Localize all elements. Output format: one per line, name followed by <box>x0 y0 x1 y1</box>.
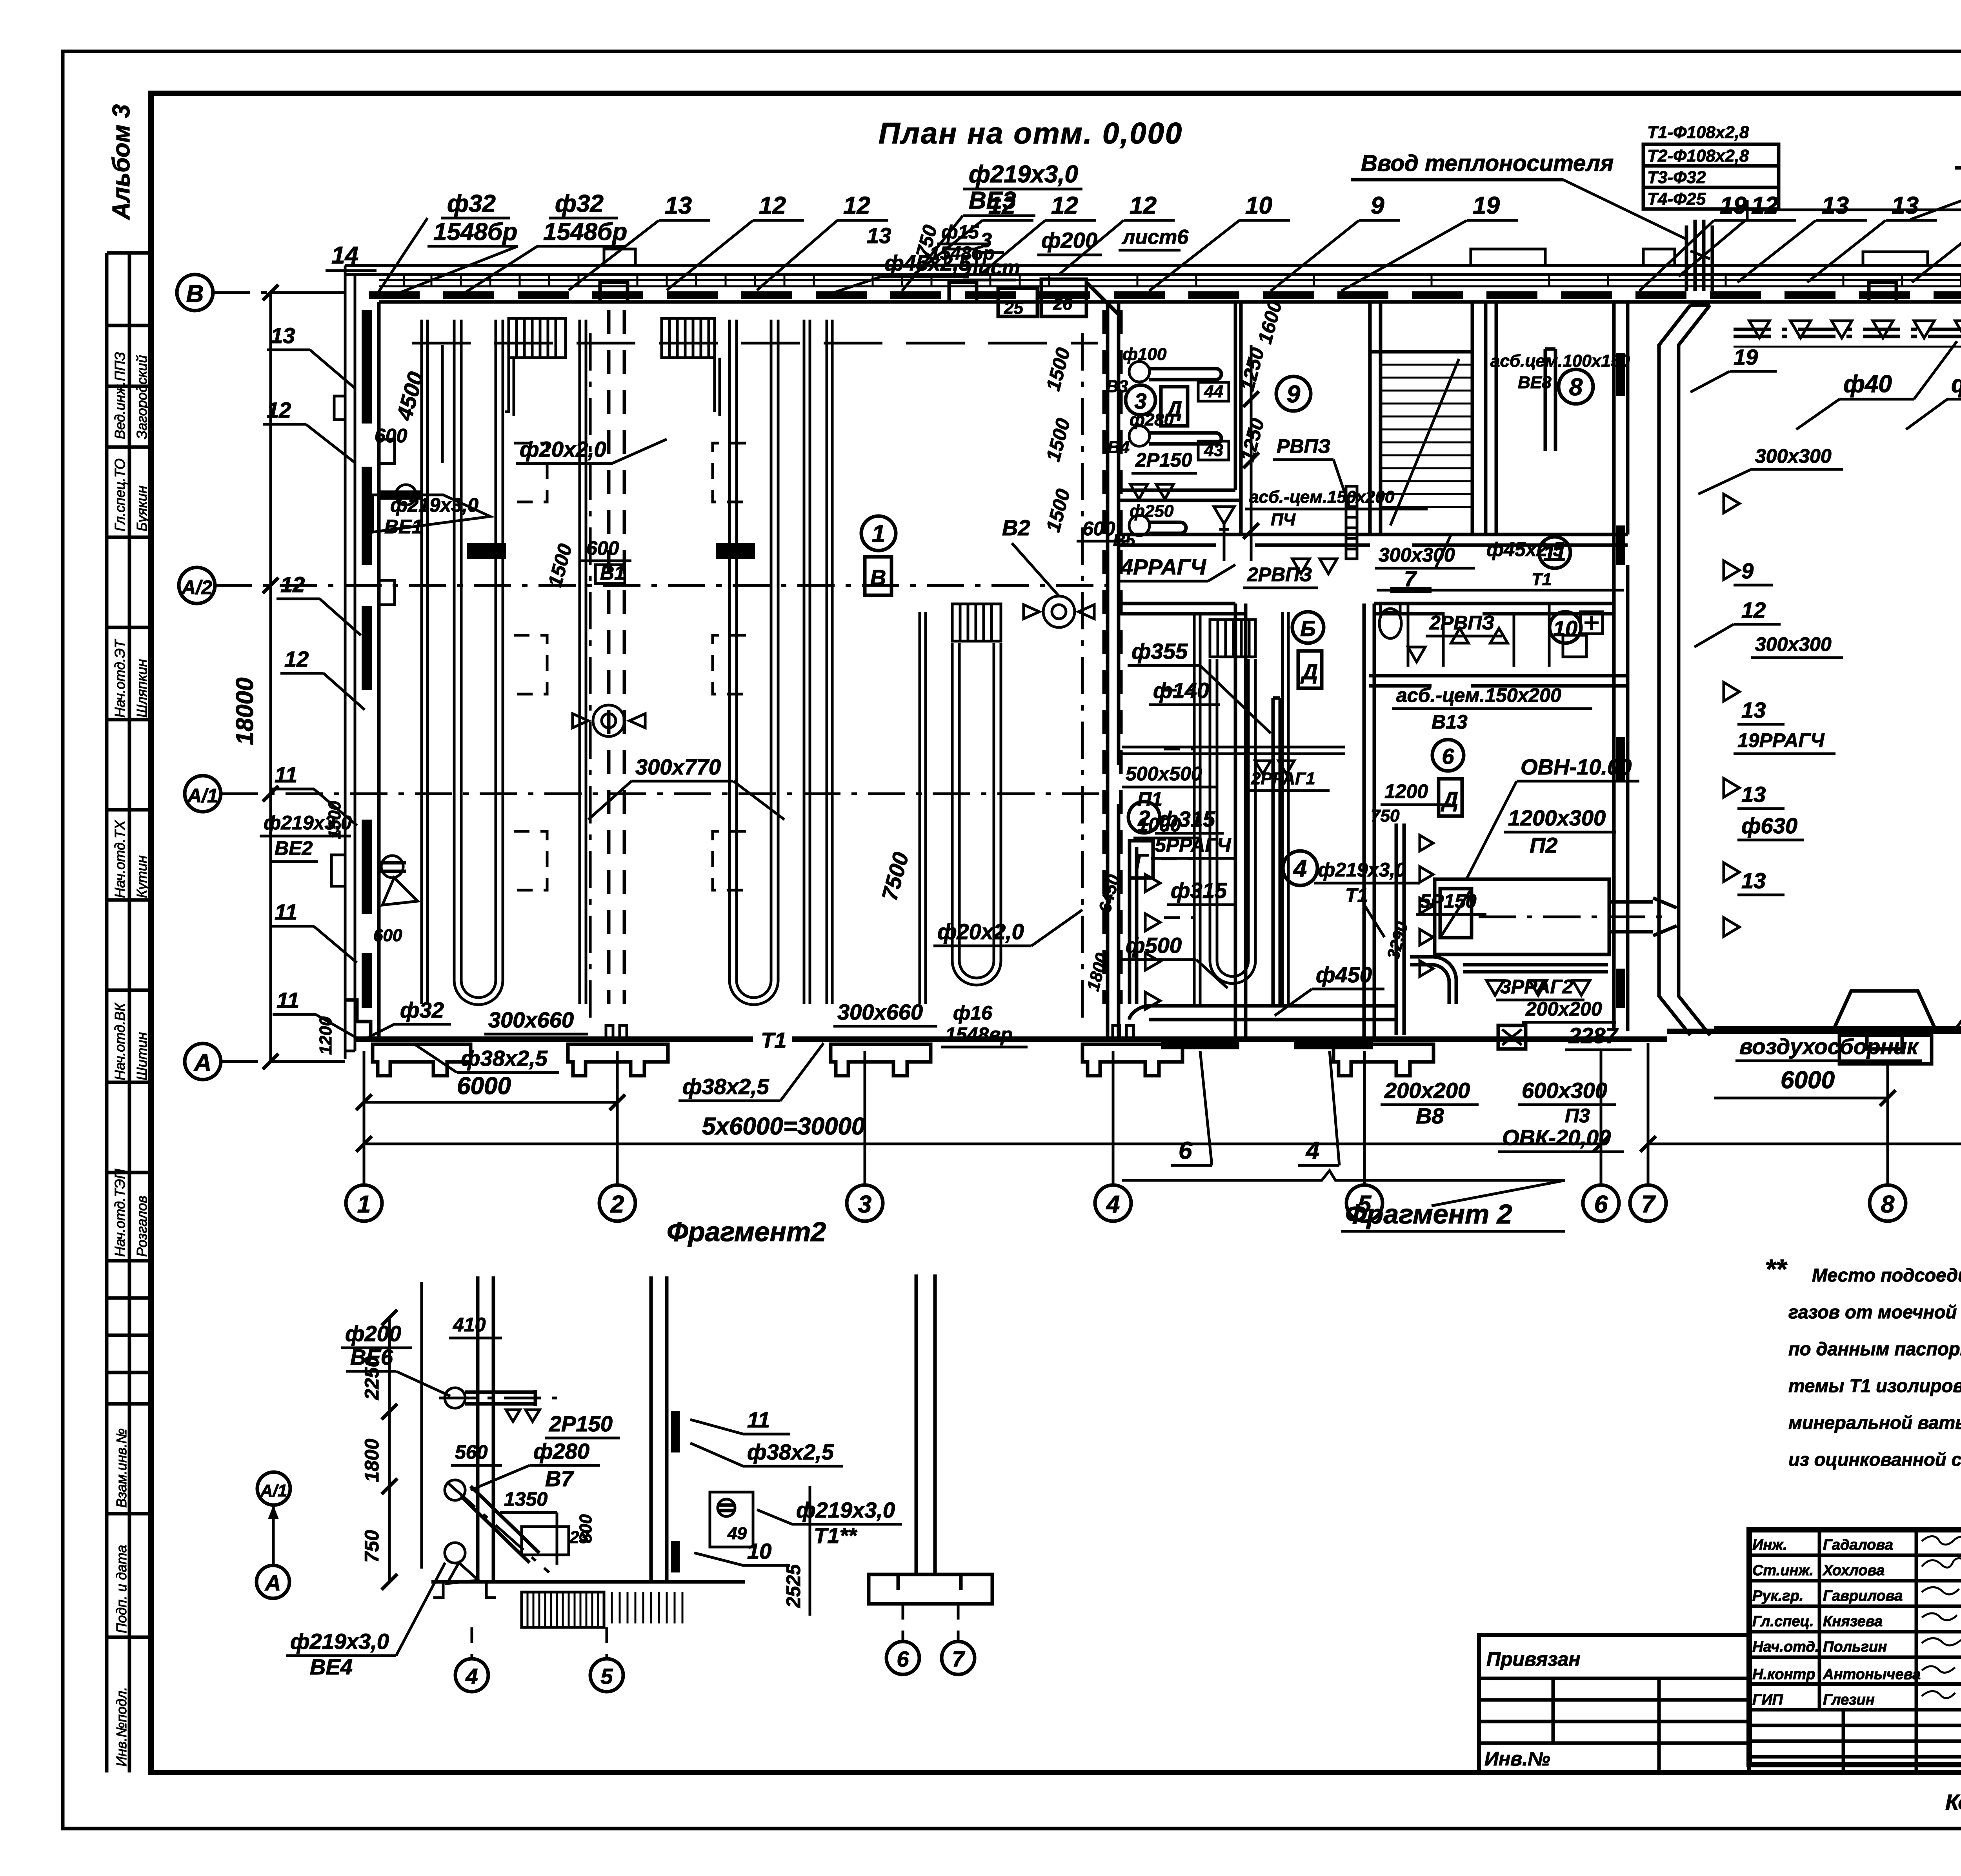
svg-text:Нач.отд.ТХ: Нач.отд.ТХ <box>112 820 128 898</box>
svg-text:19РРАГЧ: 19РРАГЧ <box>1737 729 1825 751</box>
svg-text:Инв.№подл.: Инв.№подл. <box>113 1687 129 1767</box>
svg-text:**: ** <box>1765 1254 1787 1284</box>
svg-text:Взам.инв.№: Взам.инв.№ <box>113 1428 129 1508</box>
svg-text:25: 25 <box>1004 298 1023 318</box>
svg-text:ВЕ1: ВЕ1 <box>384 516 422 538</box>
svg-text:ф38х2,5: ф38х2,5 <box>461 1046 548 1071</box>
svg-text:5РРАГЧ: 5РРАГЧ <box>1155 834 1232 856</box>
svg-text:РВПЗ: РВПЗ <box>1277 435 1331 457</box>
svg-text:4РРАГЧ: 4РРАГЧ <box>1121 554 1206 579</box>
svg-text:19: 19 <box>1720 192 1747 219</box>
svg-text:асб.-цем.150х200: асб.-цем.150х200 <box>1396 684 1561 706</box>
svg-text:асб.цем.100х150: асб.цем.100х150 <box>1490 351 1630 371</box>
svg-text:12: 12 <box>1741 598 1766 622</box>
svg-text:Нач.отд.: Нач.отд. <box>1752 1639 1819 1655</box>
svg-text:ВЕ8: ВЕ8 <box>1518 373 1552 392</box>
svg-text:2287: 2287 <box>1568 1023 1619 1048</box>
svg-text:12: 12 <box>843 192 870 219</box>
svg-text:В2: В2 <box>1002 515 1030 540</box>
svg-text:ф630: ф630 <box>1951 371 1961 398</box>
svg-text:12: 12 <box>759 192 786 219</box>
svg-text:12: 12 <box>284 647 309 671</box>
svg-text:300х300: 300х300 <box>1755 633 1832 655</box>
svg-text:1200: 1200 <box>1384 780 1428 802</box>
svg-text:лист6: лист6 <box>1121 226 1189 249</box>
svg-text:ф38х2,5: ф38х2,5 <box>747 1440 834 1464</box>
svg-text:В: В <box>186 280 204 307</box>
svg-text:12: 12 <box>267 398 291 422</box>
svg-text:Розгалов: Розгалов <box>134 1196 150 1257</box>
svg-text:3: 3 <box>858 1191 871 1218</box>
svg-text:Т4-Ф25: Т4-Ф25 <box>1647 189 1706 209</box>
svg-text:газов от моечной машины при пр: газов от моечной машины при привязке отк… <box>1788 1302 1961 1322</box>
svg-text:600: 600 <box>1082 518 1115 540</box>
svg-text:Подп. и дата: Подп. и дата <box>113 1545 129 1633</box>
svg-text:План на отм. 0,000: План на отм. 0,000 <box>879 117 1183 150</box>
svg-text:Инв.№: Инв.№ <box>1484 1748 1550 1770</box>
svg-text:13: 13 <box>1892 192 1919 219</box>
svg-text:12: 12 <box>280 572 305 597</box>
svg-text:ф355: ф355 <box>1131 639 1188 664</box>
svg-text:Гл.спец.ТО: Гл.спец.ТО <box>112 458 128 531</box>
svg-text:10: 10 <box>1553 616 1577 641</box>
svg-text:по данным паспорта моечной: по данным паспорта моечной машины. Трубо… <box>1788 1338 1961 1359</box>
svg-text:1548вр: 1548вр <box>945 1023 1013 1045</box>
svg-text:2525: 2525 <box>782 1564 804 1608</box>
svg-text:минеральной ваты толщиной с: минеральной ваты толщиной слоя 100мм с п… <box>1788 1412 1961 1433</box>
svg-text:Т2-Ф108х2,8: Т2-Ф108х2,8 <box>1647 146 1749 165</box>
svg-text:ф15: ф15 <box>941 222 979 243</box>
svg-text:13: 13 <box>1741 698 1766 722</box>
svg-text:Ст.инж.: Ст.инж. <box>1752 1562 1814 1579</box>
svg-text:600х300: 600х300 <box>1522 1078 1607 1103</box>
svg-text:темы Т1 изолировать плитами: темы Т1 изолировать плитами теплоизоляци… <box>1788 1375 1961 1396</box>
svg-text:ф20х2,0: ф20х2,0 <box>937 919 1024 944</box>
svg-text:1548бр: 1548бр <box>433 218 517 245</box>
svg-text:13: 13 <box>867 223 891 248</box>
svg-text:А: А <box>264 1571 281 1595</box>
svg-text:ф219х3,0: ф219х3,0 <box>290 1629 389 1654</box>
svg-text:600: 600 <box>586 537 619 559</box>
svg-text:1548бр: 1548бр <box>930 243 995 264</box>
svg-text:4: 4 <box>1293 855 1307 882</box>
svg-text:А/1: А/1 <box>260 1481 287 1500</box>
svg-text:8: 8 <box>1569 374 1583 401</box>
svg-text:ВЕ6: ВЕ6 <box>350 1345 393 1369</box>
svg-text:1200х300: 1200х300 <box>1508 805 1606 830</box>
svg-text:600: 600 <box>373 926 402 945</box>
svg-text:Т1: Т1 <box>1532 570 1552 589</box>
svg-text:2Р150: 2Р150 <box>1135 449 1192 471</box>
svg-text:В3: В3 <box>1106 377 1128 396</box>
svg-text:П2: П2 <box>1530 833 1557 858</box>
svg-text:13: 13 <box>1741 868 1766 893</box>
svg-text:500х500: 500х500 <box>1126 763 1202 785</box>
svg-text:7: 7 <box>1404 566 1417 591</box>
svg-text:ф16: ф16 <box>953 1002 993 1024</box>
svg-text:Т3-Ф32: Т3-Ф32 <box>1647 168 1706 187</box>
svg-text:ф200: ф200 <box>345 1321 401 1346</box>
svg-text:ф250: ф250 <box>1130 502 1174 521</box>
svg-text:13: 13 <box>271 323 295 348</box>
svg-text:Гл.спец.: Гл.спец. <box>1752 1613 1814 1630</box>
svg-text:410: 410 <box>453 1314 486 1336</box>
svg-text:Д: Д <box>1301 659 1318 684</box>
svg-text:ф315: ф315 <box>1171 878 1227 903</box>
svg-text:4: 4 <box>465 1664 478 1689</box>
svg-text:300х770: 300х770 <box>635 754 721 779</box>
svg-text:6000: 6000 <box>1781 1067 1835 1094</box>
svg-text:Нач.отд.ТЭП: Нач.отд.ТЭП <box>112 1169 128 1257</box>
svg-text:300х660: 300х660 <box>837 1000 923 1024</box>
svg-text:ОВН-10.00: ОВН-10.00 <box>1521 754 1632 779</box>
svg-text:Нач.отд.ВК: Нач.отд.ВК <box>112 1002 128 1080</box>
svg-text:Фрагмент2: Фрагмент2 <box>667 1216 826 1247</box>
svg-text:19: 19 <box>1734 345 1758 369</box>
svg-text:12: 12 <box>1130 192 1157 219</box>
svg-text:Инж.: Инж. <box>1752 1537 1787 1553</box>
svg-text:750: 750 <box>361 1530 383 1563</box>
svg-text:1: 1 <box>872 520 885 547</box>
svg-text:ф38х2,5: ф38х2,5 <box>682 1074 769 1099</box>
svg-text:ГИП: ГИП <box>1752 1692 1783 1708</box>
svg-text:7: 7 <box>1641 1191 1656 1218</box>
svg-text:19: 19 <box>1473 192 1500 219</box>
svg-text:Н.контр: Н.контр <box>1752 1666 1815 1683</box>
svg-text:В4: В4 <box>1108 438 1130 457</box>
svg-text:ВЕ4: ВЕ4 <box>310 1654 353 1679</box>
svg-text:Гаврилова: Гаврилова <box>1823 1588 1903 1604</box>
svg-text:ф219х3,0: ф219х3,0 <box>1318 859 1406 881</box>
svg-text:из оцинкованной стали с газо: из оцинкованной стали с газоплотными сое… <box>1788 1449 1961 1470</box>
svg-text:6: 6 <box>1179 1137 1192 1164</box>
svg-text:Рук.гр.: Рук.гр. <box>1752 1588 1803 1604</box>
svg-text:ф32: ф32 <box>555 190 604 217</box>
svg-text:ф315: ф315 <box>1159 807 1215 831</box>
svg-text:8: 8 <box>1881 1191 1895 1218</box>
svg-text:12: 12 <box>1751 192 1778 219</box>
svg-text:4: 4 <box>1106 1191 1120 1218</box>
svg-text:6: 6 <box>1442 744 1454 769</box>
svg-text:43: 43 <box>1204 441 1223 460</box>
svg-text:18000: 18000 <box>231 678 258 745</box>
svg-text:ф32: ф32 <box>400 998 444 1022</box>
svg-text:2: 2 <box>610 1191 624 1218</box>
svg-text:Т1**: Т1** <box>814 1523 857 1548</box>
svg-text:10: 10 <box>1245 192 1272 219</box>
svg-text:Загородский: Загородский <box>134 355 150 439</box>
svg-text:Хохлова: Хохлова <box>1822 1562 1885 1579</box>
svg-text:3: 3 <box>1134 389 1146 413</box>
svg-text:В8: В8 <box>1416 1103 1444 1128</box>
svg-text:Ввод теплоносителя: Ввод теплоносителя <box>1361 151 1614 176</box>
svg-text:11: 11 <box>747 1407 770 1432</box>
svg-text:560: 560 <box>455 1441 488 1463</box>
svg-text:Альбом 3: Альбом 3 <box>108 104 135 220</box>
svg-text:6: 6 <box>1594 1191 1608 1218</box>
svg-text:В5: В5 <box>1113 531 1135 550</box>
svg-text:воздухосборник: воздухосборник <box>1739 1034 1919 1059</box>
svg-text:А/2: А/2 <box>181 576 212 598</box>
svg-text:ф219х3,0: ф219х3,0 <box>264 812 352 834</box>
svg-text:ф500: ф500 <box>1126 933 1182 958</box>
svg-text:6000: 6000 <box>457 1073 511 1100</box>
svg-text:Шитин: Шитин <box>134 1032 150 1080</box>
svg-text:1800: 1800 <box>361 1439 383 1482</box>
svg-text:2РВПЗ: 2РВПЗ <box>1247 564 1312 585</box>
svg-text:ф450: ф450 <box>1316 962 1372 987</box>
svg-text:Привязан: Привязан <box>1486 1648 1581 1670</box>
svg-text:Антонычева: Антонычева <box>1823 1666 1921 1683</box>
svg-text:П3: П3 <box>1565 1105 1590 1127</box>
svg-text:Нач.отд.ЭТ: Нач.отд.ЭТ <box>112 638 128 718</box>
svg-text:Д: Д <box>1441 787 1458 812</box>
svg-text:6: 6 <box>897 1647 909 1671</box>
svg-text:ф100: ф100 <box>1122 345 1167 364</box>
svg-text:Глезин: Глезин <box>1823 1692 1875 1708</box>
svg-text:Польгин: Польгин <box>1823 1639 1887 1655</box>
svg-text:200х200: 200х200 <box>1384 1078 1470 1103</box>
svg-text:9: 9 <box>1287 381 1301 408</box>
svg-text:Копировал Ивснова: Копировал Ивснова <box>1945 1790 1961 1814</box>
svg-text:5х6000=30000: 5х6000=30000 <box>702 1113 865 1140</box>
svg-text:9: 9 <box>1371 192 1384 219</box>
svg-text:ф140: ф140 <box>1153 678 1209 703</box>
svg-text:ф630: ф630 <box>1741 813 1797 838</box>
svg-text:9: 9 <box>1741 558 1754 583</box>
svg-text:Князева: Князева <box>1823 1613 1883 1630</box>
svg-text:5: 5 <box>1358 1191 1372 1218</box>
svg-text:Буякин: Буякин <box>134 485 150 531</box>
svg-text:В13: В13 <box>1432 711 1468 733</box>
svg-text:26: 26 <box>1053 294 1072 314</box>
svg-text:1548бр: 1548бр <box>543 218 627 245</box>
svg-text:Место подсоединения технологич: Место подсоединения технологического выб… <box>1812 1265 1961 1285</box>
svg-text:11: 11 <box>275 900 297 924</box>
svg-text:ф32: ф32 <box>447 190 496 217</box>
svg-text:49: 49 <box>727 1524 747 1543</box>
svg-text:Т1: Т1 <box>1345 884 1368 906</box>
svg-text:1200: 1200 <box>316 1016 335 1055</box>
svg-text:ПЧ: ПЧ <box>1271 510 1296 529</box>
svg-text:4: 4 <box>1305 1137 1319 1164</box>
svg-text:ОВК-20,00: ОВК-20,00 <box>1502 1125 1611 1150</box>
svg-text:2Р150: 2Р150 <box>549 1411 613 1436</box>
svg-text:300х300: 300х300 <box>1755 445 1832 467</box>
svg-text:ф40: ф40 <box>1843 371 1892 398</box>
svg-text:ф20х2,0: ф20х2,0 <box>520 437 606 462</box>
svg-text:Т1-Ф108х2,8: Т1-Ф108х2,8 <box>1647 123 1749 142</box>
svg-text:13: 13 <box>665 192 692 219</box>
svg-text:А/1: А/1 <box>187 785 218 807</box>
svg-text:ф45х2,5: ф45х2,5 <box>1486 538 1564 560</box>
svg-text:11: 11 <box>277 988 299 1013</box>
svg-text:В7: В7 <box>545 1466 574 1491</box>
svg-text:ф219х3,0: ф219х3,0 <box>969 161 1078 188</box>
svg-text:Вед.инж.ППЗ: Вед.инж.ППЗ <box>112 352 128 439</box>
svg-text:ВЕ2: ВЕ2 <box>275 837 313 859</box>
svg-text:Шляпкин: Шляпкин <box>134 659 150 718</box>
svg-text:13: 13 <box>1741 782 1766 807</box>
svg-text:750: 750 <box>1371 806 1400 825</box>
svg-text:Б: Б <box>1300 616 1316 641</box>
svg-text:11: 11 <box>275 762 297 787</box>
svg-text:13: 13 <box>1822 192 1849 219</box>
svg-text:300х300: 300х300 <box>1379 544 1455 566</box>
svg-text:Д: Д <box>1165 396 1182 421</box>
svg-text:200х200: 200х200 <box>1525 998 1602 1020</box>
svg-text:12: 12 <box>988 192 1015 219</box>
svg-text:12: 12 <box>1051 192 1078 219</box>
svg-text:44: 44 <box>1204 382 1223 401</box>
svg-text:800: 800 <box>576 1514 595 1543</box>
svg-text:600: 600 <box>375 425 407 447</box>
svg-text:Т1: Т1 <box>761 1028 786 1053</box>
svg-text:асб.-цем.150х200: асб.-цем.150х200 <box>1249 487 1395 507</box>
svg-text:1: 1 <box>357 1191 371 1218</box>
svg-text:Кутин: Кутин <box>134 855 150 898</box>
svg-text:7: 7 <box>952 1647 965 1671</box>
svg-text:5: 5 <box>600 1664 613 1689</box>
svg-text:ф280: ф280 <box>533 1439 589 1463</box>
svg-text:10: 10 <box>747 1539 771 1563</box>
svg-text:1350: 1350 <box>504 1488 548 1510</box>
svg-text:Гадалова: Гадалова <box>1823 1537 1893 1553</box>
svg-text:А: А <box>193 1049 212 1076</box>
svg-text:300х660: 300х660 <box>488 1007 574 1032</box>
